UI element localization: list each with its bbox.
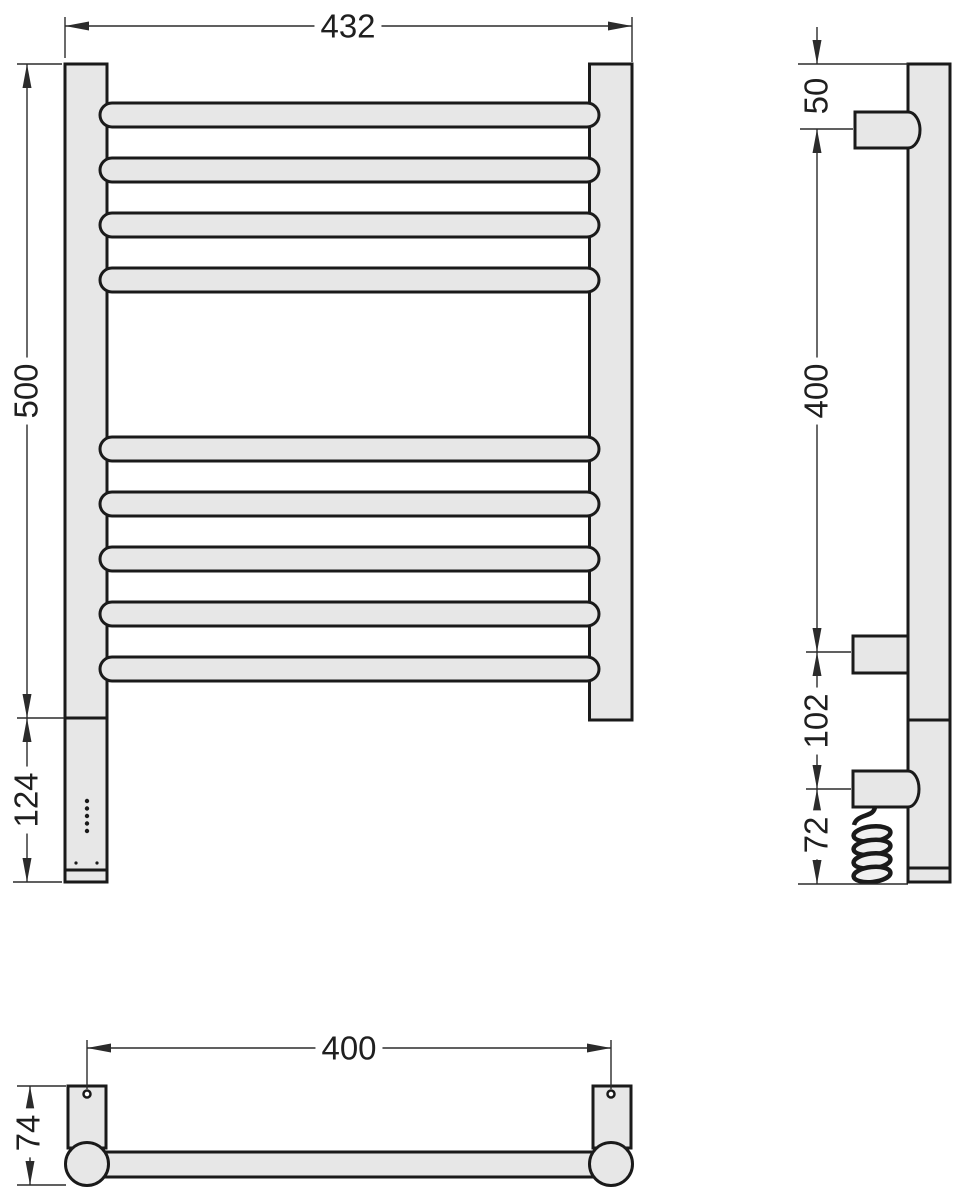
side-coiled-cable [853,806,891,884]
dim-label-102: 102 [799,687,834,754]
side-post [908,64,950,882]
rung [100,213,599,237]
side-dimensions [798,27,908,884]
dim-label-500: 500 [9,357,44,424]
rung [100,158,599,182]
front-left-post [65,64,107,882]
rung [100,437,599,461]
left-screw-hole [84,1091,91,1098]
dim-label-124: 124 [9,766,44,833]
towel-rail-drawing [0,0,966,1200]
rung [100,657,599,681]
rung [100,547,599,571]
rung [100,268,599,292]
rung [100,492,599,516]
side-bottom-bracket [853,636,908,673]
bottom-view [66,1086,633,1186]
drawing-canvas: 432 500 124 50 400 102 72 400 74 [0,0,966,1200]
rung [100,602,599,626]
dimension-offset-50 [813,27,822,64]
bottom-rail [98,1152,604,1177]
front-rungs [100,103,599,681]
bottom-right-post-end [590,1143,633,1186]
side-top-bracket [855,112,920,148]
rung [100,103,599,127]
dim-label-432: 432 [314,9,381,44]
right-screw-hole [608,1091,615,1098]
dim-label-72: 72 [799,811,834,860]
bottom-left-post-end [66,1143,109,1186]
front-view [65,64,632,882]
side-power-outlet [853,771,919,807]
dim-label-400-side: 400 [799,357,834,424]
dim-label-74: 74 [11,1109,46,1158]
side-view [853,64,950,884]
dim-label-50: 50 [799,72,834,121]
dim-label-400-bottom: 400 [315,1031,382,1066]
